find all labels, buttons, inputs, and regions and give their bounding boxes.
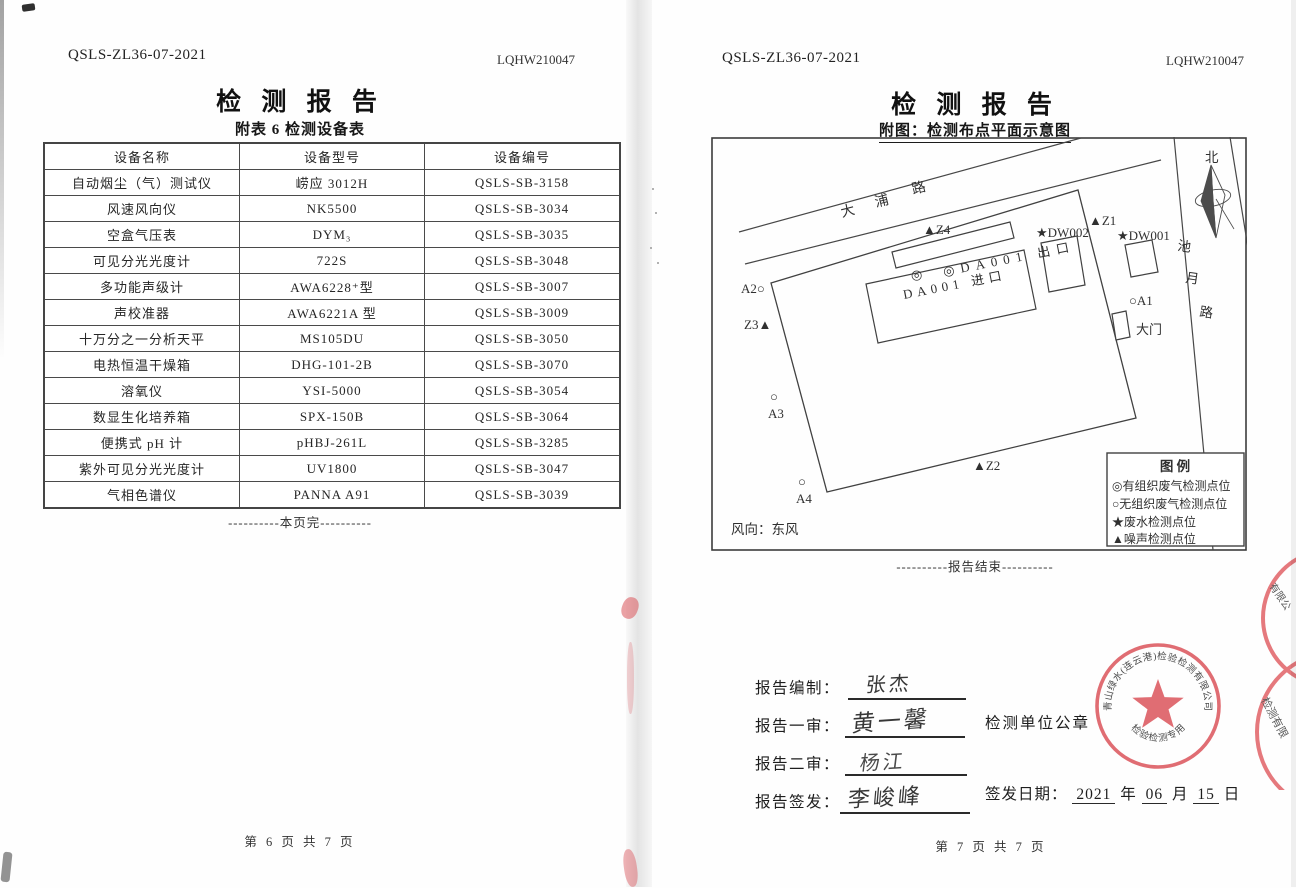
table-cell: QSLS-SB-3009 <box>425 300 621 326</box>
table-cell: 崂应 3012H <box>240 170 425 196</box>
table-row: 空盒气压表DYM₃QSLS-SB-3035 <box>44 222 620 248</box>
table-row: 自动烟尘（气）测试仪崂应 3012HQSLS-SB-3158 <box>44 170 620 196</box>
table-cell: 空盒气压表 <box>44 222 240 248</box>
scan-mark <box>22 3 36 12</box>
scan-speck <box>655 212 657 214</box>
table-cell: 紫外可见分光光度计 <box>44 456 240 482</box>
sig-line <box>848 698 966 700</box>
issue-date-year-unit: 年 <box>1120 786 1137 803</box>
table-row: 数显生化培养箱SPX-150BQSLS-SB-3064 <box>44 404 620 430</box>
issue-date-year: 2021 <box>1072 786 1115 804</box>
edge-stamp-text-fragment: 检测有限 <box>1258 695 1291 740</box>
report-end-note: ----------报告结束---------- <box>830 556 1120 575</box>
legend-item-organized-gas: ◎有组织废气检测点位 <box>1112 478 1230 493</box>
page-divider-shadow <box>626 0 652 887</box>
noise-point-z4: ▲Z4 <box>923 222 951 237</box>
doc-code-left: QSLS-ZL36-07-2021 <box>68 47 207 64</box>
unorganized-gas-point-a4: A4 <box>796 491 812 506</box>
table-row: 紫外可见分光光度计UV1800QSLS-SB-3047 <box>44 456 620 482</box>
unorganized-gas-point-a3: A3 <box>768 406 784 421</box>
site-layout-diagram: 大 浦 路 池 月 路 北 ▲Z4 ▲Z1 ★DW002 ★DW001 ◎ ◎D… <box>711 137 1247 551</box>
table-cell: AWA6221A 型 <box>240 300 425 326</box>
sig-label-second-review: 报告二审： <box>755 752 840 774</box>
signature-issued-by: 李峻峰 <box>847 778 925 814</box>
north-label: 北 <box>1205 150 1219 165</box>
chiyue-road-label-char: 路 <box>1199 304 1215 321</box>
table-cell: 风速风向仪 <box>44 196 240 222</box>
seal-caption: 检测单位公章 <box>985 711 1090 733</box>
legend-item-unorganized-gas: ○无组织废气检测点位 <box>1112 496 1227 511</box>
table-cell: MS105DU <box>240 326 425 352</box>
table-cell: DYM₃ <box>240 222 425 248</box>
table-cell: QSLS-SB-3285 <box>425 430 621 456</box>
scan-edge-right <box>1291 0 1296 887</box>
scan-mark <box>0 852 12 883</box>
table-cell: SPX-150B <box>240 404 425 430</box>
table-cell: UV1800 <box>240 456 425 482</box>
unorganized-gas-symbol-a3: ○ <box>770 389 778 404</box>
table-cell: 可见分光光度计 <box>44 248 240 274</box>
noise-point-z1: ▲Z1 <box>1089 213 1116 228</box>
table-cell: 电热恒温干燥箱 <box>44 352 240 378</box>
table-cell: 溶氧仪 <box>44 378 240 404</box>
report-number-right: LQHW210047 <box>1166 53 1244 69</box>
table-cell: QSLS-SB-3064 <box>425 404 621 430</box>
legend: 图 例 ◎有组织废气检测点位 ○无组织废气检测点位 ★废水检测点位 ▲噪声检测点… <box>1107 453 1244 546</box>
edge-stamps: 有限公 检测有限 <box>1243 550 1296 790</box>
signature-second-review: 杨江 <box>858 745 908 777</box>
sig-label-issued-by: 报告签发： <box>755 790 840 812</box>
page-footer-right: 第 7 页 共 7 页 <box>871 836 1111 855</box>
table-cell: QSLS-SB-3048 <box>425 248 621 274</box>
chiyue-road-label-char: 月 <box>1185 270 1200 287</box>
table-row: 便携式 pH 计pHBJ-261LQSLS-SB-3285 <box>44 430 620 456</box>
unorganized-gas-point-a1: ○A1 <box>1129 293 1153 308</box>
issue-date-month-unit: 月 <box>1172 786 1189 803</box>
table-cell: 自动烟尘（气）测试仪 <box>44 170 240 196</box>
table-row: 气相色谱仪PANNA A91QSLS-SB-3039 <box>44 482 620 509</box>
organized-gas-symbol: ◎ <box>911 267 922 282</box>
table-header-cell: 设备型号 <box>240 143 425 170</box>
equipment-table: 设备名称设备型号设备编号 自动烟尘（气）测试仪崂应 3012HQSLS-SB-3… <box>43 142 621 509</box>
official-stamp: 青山绿水(连云港)检验检测有限公司 检验检测专用章 <box>1090 639 1226 779</box>
table-header-cell: 设备名称 <box>44 143 240 170</box>
noise-point-z3: Z3▲ <box>744 317 771 332</box>
doc-code-right: QSLS-ZL36-07-2021 <box>722 50 861 67</box>
table-cell: QSLS-SB-3007 <box>425 274 621 300</box>
wastewater-point-dw002: ★DW002 <box>1036 225 1089 240</box>
issue-date-day: 15 <box>1193 786 1219 804</box>
table-row: 风速风向仪NK5500QSLS-SB-3034 <box>44 196 620 222</box>
signature-first-review: 黄一馨 <box>851 699 932 739</box>
gate-label: 大门 <box>1136 322 1162 337</box>
issue-date-day-unit: 日 <box>1224 786 1241 803</box>
page-end-note-left: ----------本页完---------- <box>150 512 450 531</box>
table-cell: pHBJ-261L <box>240 430 425 456</box>
dapu-road-label-char: 路 <box>910 179 927 198</box>
table-cell: 多功能声级计 <box>44 274 240 300</box>
table-cell: 十万分之一分析天平 <box>44 326 240 352</box>
table-cell: QSLS-SB-3039 <box>425 482 621 509</box>
edge-stamp-text-fragment: 有限公 <box>1267 580 1295 612</box>
unorganized-gas-point-a2: A2○ <box>741 281 765 296</box>
table-cell: 数显生化培养箱 <box>44 404 240 430</box>
scan-speck <box>652 188 654 190</box>
table-cell: PANNA A91 <box>240 482 425 509</box>
table-caption: 附表 6 检测设备表 <box>150 118 450 139</box>
page-title-left: 检 测 报 告 <box>150 82 450 118</box>
compass-north-arrow <box>1194 165 1234 238</box>
chiyue-road-label-char: 池 <box>1177 238 1192 255</box>
report-number-left: LQHW210047 <box>497 52 575 68</box>
table-cell: QSLS-SB-3047 <box>425 456 621 482</box>
legend-title: 图 例 <box>1160 458 1190 474</box>
table-cell: QSLS-SB-3050 <box>425 326 621 352</box>
signature-prepared: 张杰 <box>865 667 914 698</box>
table-cell: DHG-101-2B <box>240 352 425 378</box>
dapu-road-label-char: 浦 <box>873 192 890 211</box>
stamp-star-icon <box>1132 679 1183 728</box>
unorganized-gas-symbol-a4: ○ <box>798 474 806 489</box>
noise-point-z2: ▲Z2 <box>973 458 1000 473</box>
issue-date-label: 签发日期： <box>985 786 1068 803</box>
table-header-row: 设备名称设备型号设备编号 <box>44 143 620 170</box>
wastewater-point-dw001: ★DW001 <box>1117 228 1170 243</box>
table-cell: 便携式 pH 计 <box>44 430 240 456</box>
legend-item-wastewater: ★废水检测点位 <box>1112 514 1196 529</box>
table-cell: YSI-5000 <box>240 378 425 404</box>
issue-date-month: 06 <box>1142 786 1168 804</box>
wind-direction-note: 风向：东风 <box>731 522 799 537</box>
dapu-road-label-char: 大 <box>839 202 856 221</box>
page-footer-left: 第 6 页 共 7 页 <box>160 831 440 850</box>
table-cell: AWA6228⁺型 <box>240 274 425 300</box>
table-cell: 722S <box>240 248 425 274</box>
table-cell: 气相色谱仪 <box>44 482 240 509</box>
table-row: 可见分光光度计722SQSLS-SB-3048 <box>44 248 620 274</box>
sig-label-first-review: 报告一审： <box>755 714 840 736</box>
table-cell: QSLS-SB-3158 <box>425 170 621 196</box>
table-cell: QSLS-SB-3070 <box>425 352 621 378</box>
sig-label-prepared: 报告编制： <box>755 676 840 698</box>
issue-date-line: 签发日期： 2021 年 06 月 15 日 <box>985 782 1240 804</box>
page-title-right: 检 测 报 告 <box>830 85 1120 121</box>
table-cell: NK5500 <box>240 196 425 222</box>
scan-speck <box>657 262 659 264</box>
table-row: 电热恒温干燥箱DHG-101-2BQSLS-SB-3070 <box>44 352 620 378</box>
table-cell: QSLS-SB-3035 <box>425 222 621 248</box>
table-row: 声校准器AWA6221A 型QSLS-SB-3009 <box>44 300 620 326</box>
table-cell: 声校准器 <box>44 300 240 326</box>
ink-smudge <box>627 642 634 714</box>
table-header-cell: 设备编号 <box>425 143 621 170</box>
scan-speck <box>650 247 652 249</box>
table-cell: QSLS-SB-3034 <box>425 196 621 222</box>
table-row: 十万分之一分析天平MS105DUQSLS-SB-3050 <box>44 326 620 352</box>
legend-item-noise: ▲噪声检测点位 <box>1112 531 1196 546</box>
building-near-dw001 <box>1125 240 1158 277</box>
scan-edge-left <box>0 0 4 360</box>
table-row: 多功能声级计AWA6228⁺型QSLS-SB-3007 <box>44 274 620 300</box>
table-row: 溶氧仪YSI-5000QSLS-SB-3054 <box>44 378 620 404</box>
table-cell: QSLS-SB-3054 <box>425 378 621 404</box>
